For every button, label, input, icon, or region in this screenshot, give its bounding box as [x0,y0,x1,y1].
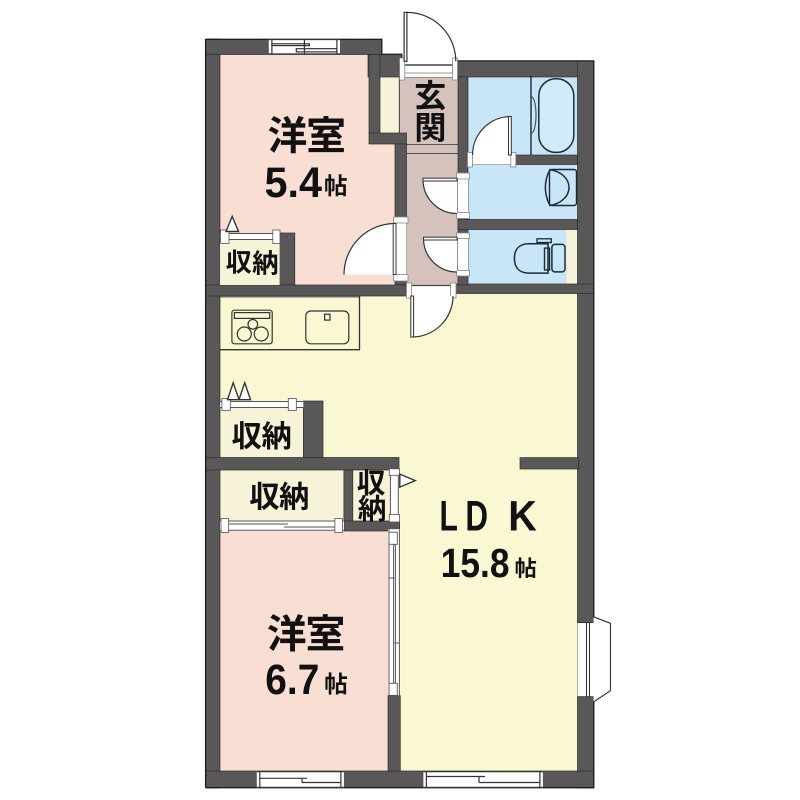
svg-text:6.7: 6.7 [265,656,319,704]
svg-text:L: L [440,491,458,540]
svg-text:15.8: 15.8 [441,540,510,586]
svg-text:K: K [508,492,537,540]
svg-text:D: D [465,492,488,540]
svg-text:5.4: 5.4 [265,160,323,207]
